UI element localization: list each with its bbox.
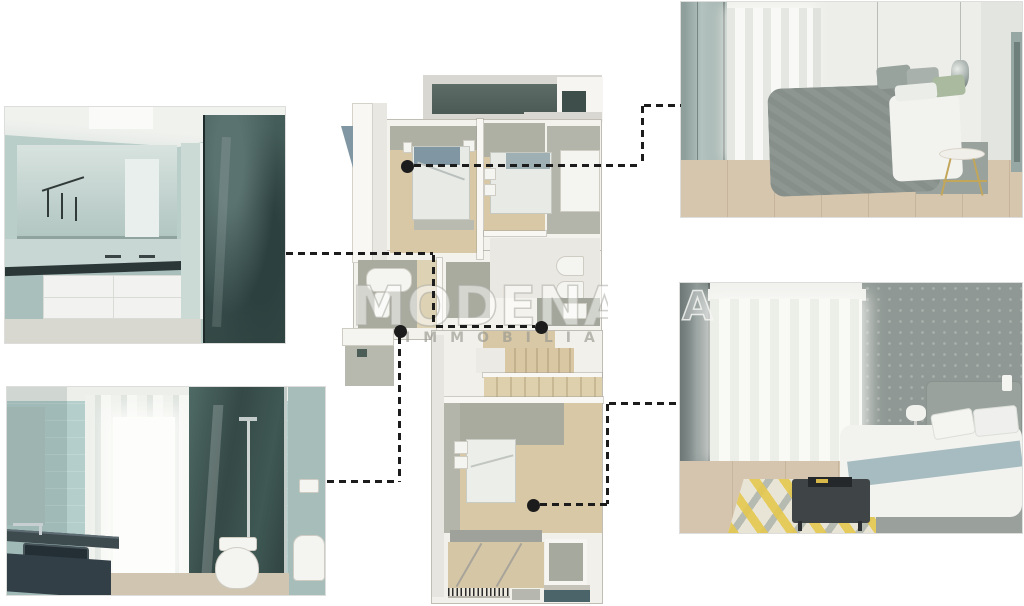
connector-segment-to-bottom-right-bedroom [606,404,609,504]
connector-segment-to-bottom-left-bathroom [327,480,399,483]
connector-dot-to-top-left-bathroom [535,321,548,334]
connector-segment-to-top-left-bathroom [286,252,433,255]
connector-dot-to-bottom-left-bathroom [394,325,407,338]
connector-segment-to-top-left-bathroom [432,255,435,326]
connector-segment-to-top-right-bedroom [641,106,644,166]
connector-segment-to-top-left-bathroom [436,325,535,328]
connector-segment-to-bottom-left-bathroom [398,337,401,482]
connector-dot-to-bottom-right-bedroom [527,499,540,512]
callout-connectors [0,0,1024,606]
connector-segment-to-bottom-right-bedroom [609,402,680,405]
flyer-canvas: A [0,0,1024,606]
connector-segment-to-top-right-bedroom [414,164,642,167]
connector-segment-to-bottom-right-bedroom [540,503,608,506]
connector-dot-to-top-right-bedroom [401,160,414,173]
connector-segment-to-top-right-bedroom [644,104,681,107]
